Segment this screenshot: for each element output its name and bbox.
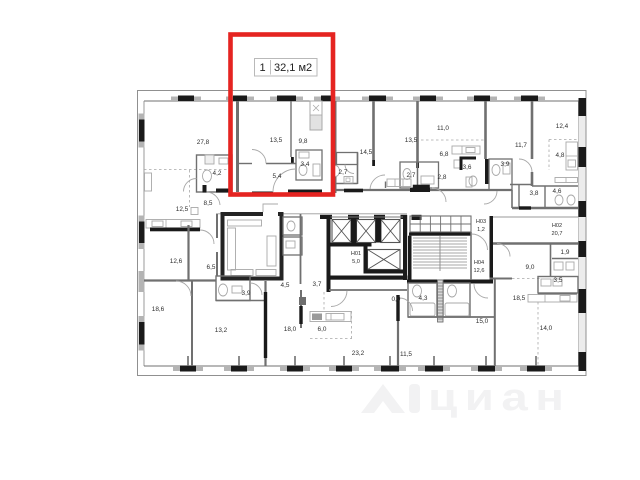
svg-text:3,5: 3,5 (554, 277, 563, 284)
svg-text:2,8: 2,8 (438, 174, 447, 181)
svg-text:14,0: 14,0 (540, 325, 553, 332)
svg-text:4,6: 4,6 (553, 188, 562, 195)
svg-text:27,8: 27,8 (197, 139, 210, 146)
svg-text:13,2: 13,2 (215, 327, 228, 334)
svg-text:13,5: 13,5 (270, 137, 283, 144)
svg-text:13,5: 13,5 (405, 137, 418, 144)
svg-text:4,8: 4,8 (556, 152, 565, 159)
svg-text:12,6: 12,6 (474, 268, 485, 274)
svg-text:20,7: 20,7 (552, 231, 563, 237)
svg-text:2,7: 2,7 (339, 169, 348, 176)
svg-text:3,4: 3,4 (301, 161, 310, 168)
svg-text:3,7: 3,7 (313, 281, 322, 288)
svg-text:15,0: 15,0 (476, 318, 489, 325)
svg-text:4,3: 4,3 (419, 295, 428, 302)
svg-text:18,6: 18,6 (152, 306, 165, 313)
svg-text:циан: циан (428, 376, 571, 418)
svg-text:14,5: 14,5 (360, 149, 373, 156)
svg-text:4,2: 4,2 (213, 170, 222, 177)
svg-text:1,2: 1,2 (477, 227, 485, 233)
svg-text:3,9: 3,9 (242, 290, 251, 297)
svg-text:Н01: Н01 (351, 251, 361, 257)
svg-text:9,8: 9,8 (299, 138, 308, 145)
svg-text:6,0: 6,0 (318, 326, 327, 333)
svg-text:1,9: 1,9 (561, 249, 570, 256)
svg-text:23,2: 23,2 (352, 350, 365, 357)
svg-text:8,5: 8,5 (204, 200, 213, 207)
svg-text:11,0: 11,0 (437, 125, 449, 132)
svg-text:6,5: 6,5 (207, 264, 216, 271)
svg-text:9,0: 9,0 (526, 264, 535, 271)
svg-text:0,9: 0,9 (392, 296, 401, 303)
svg-text:3,9: 3,9 (501, 161, 510, 168)
svg-text:12,5: 12,5 (176, 206, 189, 213)
svg-text:5,0: 5,0 (352, 259, 360, 265)
svg-text:3,8: 3,8 (530, 190, 539, 197)
svg-text:6,8: 6,8 (440, 151, 449, 158)
svg-text:32,1 м2: 32,1 м2 (274, 62, 312, 74)
svg-text:Н04: Н04 (474, 260, 484, 266)
svg-text:Н03: Н03 (476, 219, 486, 225)
svg-text:4,5: 4,5 (281, 282, 290, 289)
svg-text:18,5: 18,5 (513, 295, 526, 302)
svg-text:3,6: 3,6 (463, 164, 472, 171)
svg-text:1: 1 (259, 62, 265, 74)
svg-text:Н02: Н02 (552, 223, 562, 229)
svg-text:12,4: 12,4 (556, 123, 569, 130)
svg-text:18,0: 18,0 (284, 326, 297, 333)
svg-text:11,5: 11,5 (400, 351, 412, 358)
svg-text:5,4: 5,4 (273, 173, 282, 180)
svg-text:2,7: 2,7 (407, 172, 416, 179)
svg-text:12,6: 12,6 (170, 258, 183, 265)
svg-text:11,7: 11,7 (515, 142, 527, 149)
